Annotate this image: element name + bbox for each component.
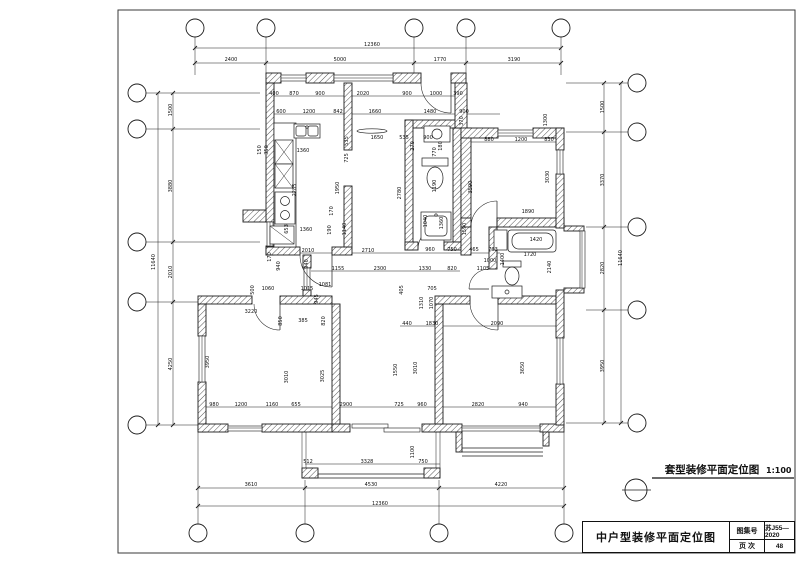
- dim-label: 1300: [543, 114, 549, 127]
- dim-label: 900: [402, 91, 412, 97]
- dim-label: 385: [298, 318, 308, 324]
- dim-label: 512: [303, 459, 313, 465]
- dim-label: 1310: [419, 297, 425, 310]
- dim-label: 1360: [297, 148, 310, 154]
- dim-label: 1950: [335, 182, 341, 195]
- dim-label: 4530: [365, 482, 378, 488]
- dim-label: 770: [432, 147, 438, 157]
- dim-label: 1420: [530, 237, 543, 243]
- dim-label: 1081: [319, 282, 332, 288]
- dim-label: 1400: [500, 253, 506, 266]
- dim-label: 12360: [364, 42, 380, 48]
- dim-label: 1360: [300, 227, 313, 233]
- dim-label: 170: [329, 206, 335, 216]
- dim-label: 1060: [262, 286, 275, 292]
- dim-label: 600: [276, 109, 286, 115]
- dim-label: 4220: [495, 482, 508, 488]
- dim-label: 2900: [340, 402, 353, 408]
- dim-label: 1830: [426, 321, 439, 327]
- dim-label: 180: [438, 141, 444, 151]
- dim-label: 1140: [342, 223, 348, 236]
- title-block: 中户型装修平面定位图 图集号 苏J55—2020 页 次 48: [582, 521, 795, 553]
- dim-label: 1015: [301, 286, 314, 292]
- dim-label: 535: [344, 136, 350, 146]
- dim-label: 11640: [151, 254, 157, 270]
- dim-label: 940: [276, 261, 282, 271]
- dim-label: 1105: [477, 266, 490, 272]
- dim-label: 900: [459, 109, 469, 115]
- dim-label: 1590: [462, 223, 468, 236]
- dim-label: 1200: [515, 137, 528, 143]
- dim-label: 750: [447, 247, 457, 253]
- dim-label: 655: [291, 402, 301, 408]
- page-no-label: 页 次: [730, 540, 765, 552]
- dim-label: 1200: [235, 402, 248, 408]
- kitchen-sink-icon: [294, 124, 320, 138]
- dim-label: 1155: [332, 266, 345, 272]
- dim-label: 725: [344, 153, 350, 163]
- dim-label: 3950: [205, 356, 211, 369]
- dim-label: 1550: [393, 364, 399, 377]
- dim-label: 405: [399, 285, 405, 295]
- dim-label: 2020: [357, 91, 370, 97]
- dim-label: 1650: [371, 135, 384, 141]
- dim-label: 653: [284, 224, 290, 234]
- dim-label: 900: [423, 135, 433, 141]
- dim-label: 350: [264, 145, 270, 155]
- dim-label: 440: [402, 321, 412, 327]
- dim-label: 3010: [413, 362, 419, 375]
- dim-label: 940: [518, 402, 528, 408]
- dim-label: 1040: [423, 215, 429, 228]
- dim-label: 880: [484, 137, 494, 143]
- dim-label: 820: [447, 266, 457, 272]
- dim-label: 11640: [618, 250, 624, 266]
- shelf-icon: [357, 129, 387, 133]
- dim-label: 2820: [472, 402, 485, 408]
- dim-label: 3950: [600, 360, 606, 373]
- dim-label: 370: [459, 116, 465, 126]
- dim-label: 270: [410, 141, 416, 151]
- dim-label: 705: [427, 286, 437, 292]
- dim-label: 1770: [434, 57, 447, 63]
- dim-label: 1720: [524, 252, 537, 258]
- dim-label: 390: [453, 91, 463, 97]
- dim-label: 5000: [334, 57, 347, 63]
- dim-label: 900: [315, 91, 325, 97]
- dim-label: 960: [425, 247, 435, 253]
- dim-label: 3590: [468, 181, 474, 194]
- dim-label: 725: [394, 402, 404, 408]
- dim-label: 465: [469, 247, 479, 253]
- dim-label: 2090: [491, 321, 504, 327]
- dim-label: 2140: [547, 261, 553, 274]
- page-no-value: 48: [765, 540, 794, 552]
- dim-label: 1660: [369, 109, 382, 115]
- dim-label: 2820: [600, 262, 606, 275]
- dim-label: 850: [278, 316, 284, 326]
- vanity2-icon: [492, 286, 522, 298]
- dim-label: 842: [333, 109, 343, 115]
- fridge-icon: [270, 226, 294, 244]
- caption-scale: 1:100: [766, 466, 792, 475]
- dim-label: 940: [304, 259, 310, 269]
- dim-label: 1100: [410, 446, 416, 459]
- dim-label: 1360: [439, 217, 445, 230]
- dim-label: 2010: [302, 248, 315, 254]
- dim-label: 190: [327, 225, 333, 235]
- atlas-no-value: 苏J55—2020: [765, 522, 794, 539]
- dim-label: 1500: [168, 104, 174, 117]
- dim-label: 2400: [225, 57, 238, 63]
- dim-label: 500: [250, 285, 256, 295]
- dim-label: 3328: [361, 459, 374, 465]
- drawing-title: 中户型装修平面定位图: [583, 522, 730, 552]
- dim-label: 960: [417, 402, 427, 408]
- dim-label: 1000: [430, 91, 443, 97]
- atlas-no-label: 图集号: [730, 522, 765, 539]
- dim-label: 3030: [545, 171, 551, 184]
- dim-label: 1160: [266, 402, 279, 408]
- dim-label: 820: [321, 316, 327, 326]
- kitchen-cabinet-icon: [275, 140, 293, 188]
- dim-label: 1330: [419, 266, 432, 272]
- dim-label: 4250: [168, 358, 174, 371]
- dim-label: 750: [418, 459, 428, 465]
- dim-label: 3370: [600, 174, 606, 187]
- dim-label: 1190: [432, 180, 438, 193]
- dim-label: 170: [267, 252, 273, 262]
- dim-label: 2710: [362, 248, 375, 254]
- dim-label: 1000: [484, 258, 497, 264]
- dim-label: 1070: [429, 297, 435, 310]
- dim-label: 3610: [245, 482, 258, 488]
- dim-label: 1500: [600, 101, 606, 114]
- dim-label: 3010: [284, 371, 290, 384]
- axis-grid: [128, 19, 646, 542]
- dim-label: 1480: [424, 109, 437, 115]
- floor-plan-canvas: 1236024005000177031904008709002020900100…: [0, 0, 799, 566]
- dim-label: 150: [257, 145, 263, 155]
- dim-label: 3190: [508, 57, 521, 63]
- caption-text: 套型装修平面定位图: [664, 463, 760, 476]
- dim-label: 12360: [372, 501, 388, 507]
- dim-label: 2285: [292, 184, 298, 197]
- dim-label: 3650: [520, 362, 526, 375]
- dim-label: 3220: [245, 309, 258, 315]
- dim-label: 870: [289, 91, 299, 97]
- dim-label: 980: [209, 402, 219, 408]
- dim-label: 1890: [522, 209, 535, 215]
- drawing-sheet: 1236024005000177031904008709002020900100…: [0, 0, 799, 566]
- dim-label: 1200: [303, 109, 316, 115]
- dimension-labels: 1236024005000177031904008709002020900100…: [151, 42, 624, 507]
- dim-label: 830: [544, 137, 554, 143]
- dim-label: 3880: [168, 180, 174, 193]
- dim-label: 3025: [320, 370, 326, 383]
- plan-caption: 套型装修平面定位图 1:100: [622, 463, 794, 501]
- dim-label: 2010: [168, 266, 174, 279]
- dim-label: 535: [399, 135, 409, 141]
- dim-label: 945: [314, 294, 320, 304]
- dim-label: 2300: [374, 266, 387, 272]
- dim-label: 2780: [397, 187, 403, 200]
- dim-label: 400: [269, 91, 279, 97]
- dim-label: 793: [488, 247, 498, 253]
